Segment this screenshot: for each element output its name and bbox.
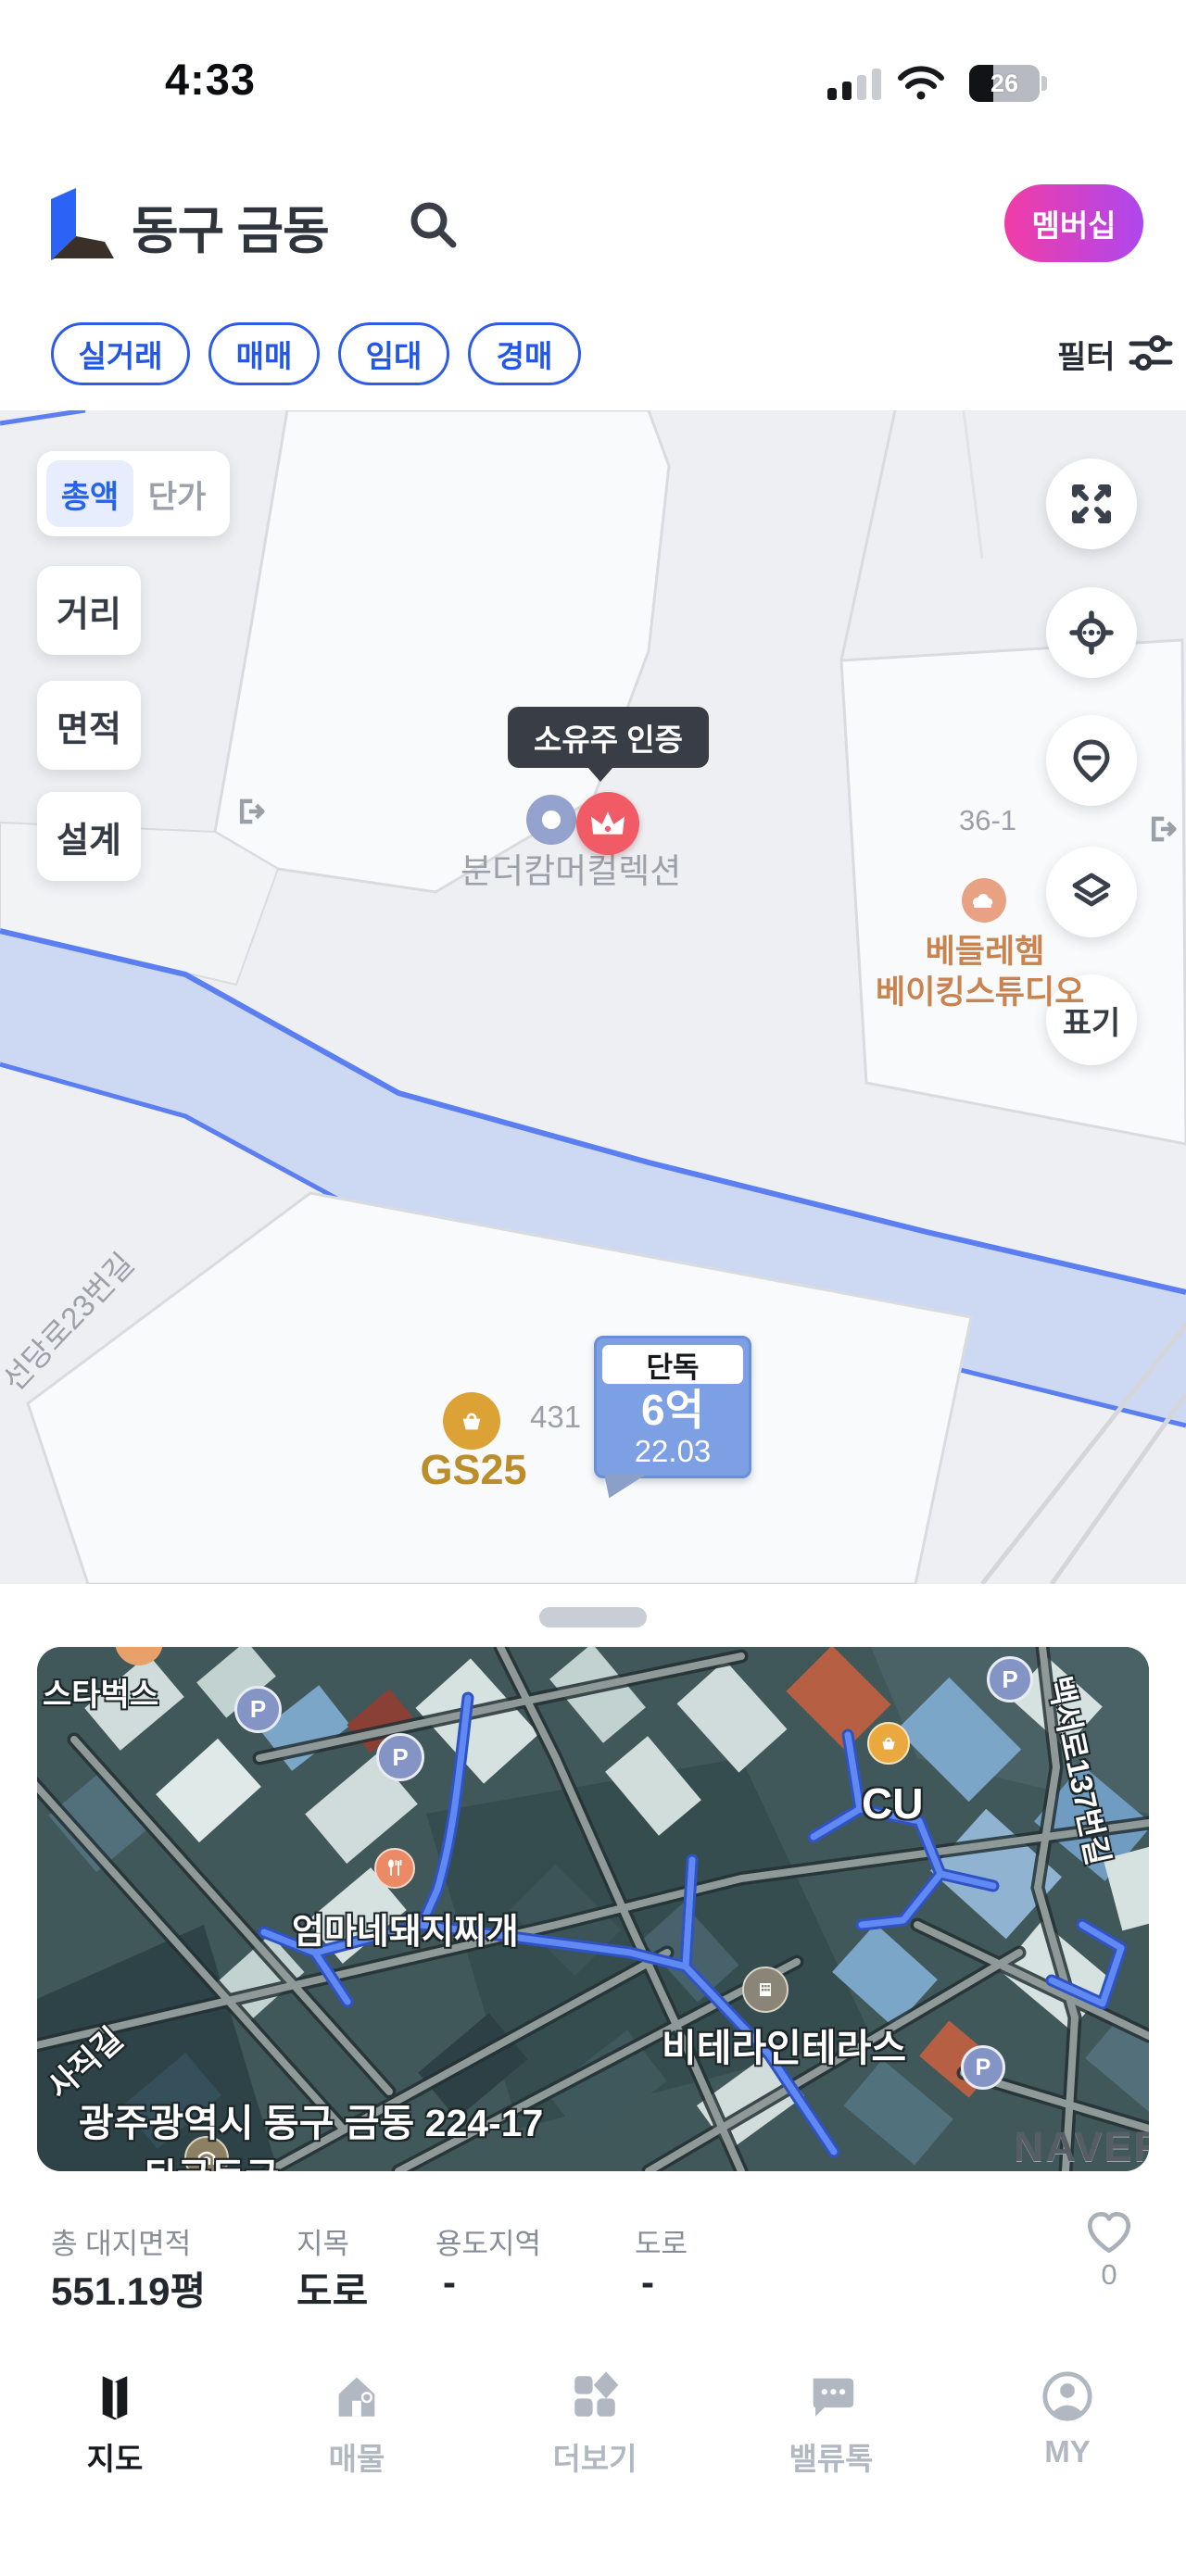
house-icon: [330, 2369, 384, 2423]
poi-dot-icon: [526, 795, 576, 845]
gate-icon: [232, 793, 269, 830]
toggle-unit-price[interactable]: 단가: [133, 460, 221, 527]
info-label-category: 지목: [296, 2220, 349, 2262]
filter-chip-sale[interactable]: 매매: [208, 322, 320, 385]
address-label: 광주광역시 동구 금동 224-17: [79, 2092, 543, 2147]
nav-item-more[interactable]: 더보기: [521, 2369, 669, 2479]
heart-icon: [1082, 2206, 1136, 2256]
favorite-count: 0: [1082, 2258, 1136, 2292]
filter-label[interactable]: 필터: [1057, 332, 1116, 377]
filter-chip-rent[interactable]: 임대: [338, 322, 449, 385]
filter-chip-auction[interactable]: 경매: [468, 322, 581, 385]
building-poi-icon: [742, 1967, 789, 2013]
filter-chip-real-deal[interactable]: 실거래: [51, 322, 190, 385]
status-time: 4:33: [165, 54, 256, 105]
info-label-road: 도로: [635, 2220, 688, 2262]
price-mode-toggle: 총액 단가: [37, 451, 230, 536]
restaurant-icon: [374, 1848, 415, 1889]
nav-item-valuetalk[interactable]: 밸류톡: [757, 2369, 905, 2479]
toggle-total-price[interactable]: 총액: [46, 460, 133, 527]
grid-icon: [568, 2369, 622, 2423]
price-marker[interactable]: 단독 6억 22.03: [594, 1336, 751, 1478]
layers-button[interactable]: [1046, 847, 1137, 937]
info-value-zone: -: [443, 2260, 456, 2305]
bakery-label-line2: 베이킹스튜디오: [876, 966, 1163, 1013]
gate-icon: [1143, 810, 1180, 848]
page-title: 동구 금동: [132, 189, 329, 263]
membership-button[interactable]: 멤버십: [1004, 184, 1143, 262]
sheet-drag-handle[interactable]: [539, 1607, 647, 1627]
price-marker-price: 6억: [602, 1386, 743, 1435]
favorite-button[interactable]: [1082, 2206, 1136, 2256]
parking-icon: P: [987, 1656, 1033, 1703]
expand-icon: [1066, 478, 1117, 530]
parking-icon: P: [376, 1733, 424, 1781]
nav-item-map[interactable]: 지도: [41, 2369, 189, 2479]
chat-bubble-icon: [804, 2369, 858, 2423]
distance-button[interactable]: 거리: [37, 566, 141, 655]
info-label-zone: 용도지역: [435, 2220, 541, 2262]
info-value-road: -: [641, 2260, 654, 2305]
info-value-category: 도로: [296, 2260, 368, 2317]
bottom-sheet: 스타벅스 P P 엄마네돼지찌개 CU 백서로137번길 사직길: [0, 1584, 1186, 2576]
owner-verified-tooltip: 소유주 인증: [508, 707, 709, 768]
battery-nub: [1041, 76, 1047, 91]
pin-minus-icon: [1066, 735, 1117, 786]
restaurant-label: 엄마네돼지찌개: [292, 1903, 519, 1954]
wifi-icon: [897, 65, 945, 102]
current-location-button[interactable]: [1046, 587, 1137, 678]
terrace-label: 비테라인테라스: [662, 2017, 906, 2072]
battery-icon: 26: [969, 65, 1040, 102]
satellite-preview[interactable]: 스타벅스 P P 엄마네돼지찌개 CU 백서로137번길 사직길: [37, 1647, 1149, 2171]
parking-icon: P: [234, 1686, 282, 1733]
parcel-431-label: 431: [530, 1400, 581, 1435]
cu-label: CU: [862, 1778, 923, 1828]
filter-bar: 실거래 매매 임대 경매 필터: [0, 296, 1186, 412]
bakery-poi-icon: [962, 878, 1006, 923]
search-icon[interactable]: [405, 196, 462, 254]
app-logo: [51, 188, 114, 262]
cave-label: 뒷굴동굴: [143, 2147, 279, 2171]
map-icon: [88, 2369, 142, 2423]
nav-item-listings[interactable]: 매물: [283, 2369, 431, 2479]
map-canvas[interactable]: 총액 단가 거리 면적 설계: [0, 410, 1186, 1584]
app-screen: 4:33 26 동구 금동 멤버십 실거래 매매 임대 경매 필터: [0, 0, 1186, 2576]
nav-item-my[interactable]: MY: [993, 2369, 1142, 2469]
person-icon: [1041, 2369, 1094, 2423]
design-button[interactable]: 설계: [37, 792, 141, 881]
parcel-36-label: 36-1: [959, 804, 1016, 837]
price-marker-type: 단독: [602, 1345, 743, 1384]
starbucks-label: 스타벅스: [43, 1669, 158, 1715]
info-value-total-area: 551.19평: [51, 2260, 206, 2317]
parking-icon: P: [961, 2045, 1005, 2090]
wunderkammer-label: 분더캄머컬렉션: [461, 843, 681, 893]
crown-icon: [590, 809, 625, 838]
battery-percent: 26: [969, 65, 1040, 102]
info-label-total-area: 총 대지면적: [51, 2220, 191, 2262]
cu-poi-icon: [867, 1722, 910, 1765]
filter-sliders-icon[interactable]: [1127, 328, 1175, 376]
price-marker-date: 22.03: [602, 1435, 743, 1468]
layers-icon: [1066, 866, 1117, 918]
gs25-label: GS25: [413, 1446, 534, 1494]
crosshair-icon: [1066, 607, 1117, 659]
bottom-nav: 지도 매물 더보기: [0, 2353, 1186, 2576]
gs25-poi-icon: [443, 1392, 500, 1450]
naver-watermark: NAVER: [1014, 2123, 1149, 2171]
signal-strength-icon: [827, 69, 881, 100]
remove-pin-button[interactable]: [1046, 715, 1137, 806]
fullscreen-button[interactable]: [1046, 459, 1137, 549]
owner-verified-marker[interactable]: [576, 792, 639, 855]
area-button[interactable]: 면적: [37, 681, 141, 770]
